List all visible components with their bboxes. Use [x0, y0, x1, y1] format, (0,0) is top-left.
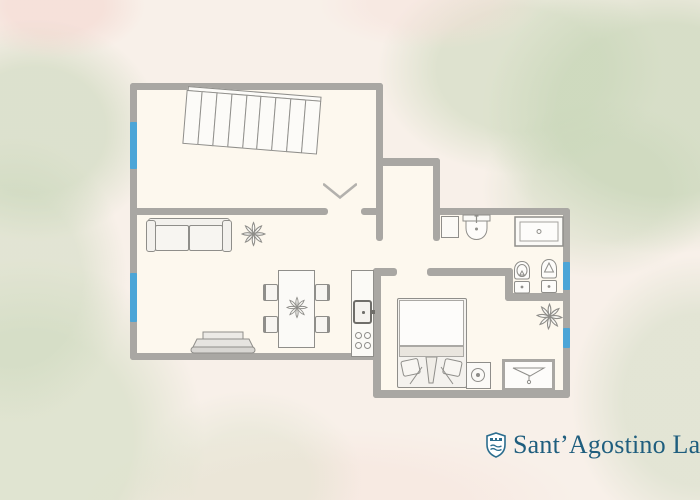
kitchen-sink [353, 300, 372, 324]
bed-pillows [398, 357, 465, 386]
bed-duvet [399, 300, 464, 346]
washing-machine [466, 362, 491, 389]
sofa-armrest-right [222, 220, 232, 252]
sink-drain [362, 311, 365, 314]
wall-corridor-right [433, 158, 440, 241]
wall-bedroom-left [373, 268, 381, 398]
double-bed [397, 298, 467, 388]
sofa-cushion [189, 225, 223, 251]
wall-bottom [373, 390, 570, 398]
dining-chair [315, 284, 330, 301]
basin-icon [510, 366, 547, 386]
washing-machine-door [476, 373, 480, 377]
stove-burner [364, 342, 371, 349]
staircase [183, 86, 321, 155]
shield-lake-icon [485, 432, 507, 458]
wall-top [130, 83, 383, 90]
staircase-steps [183, 90, 321, 155]
plant-icon [241, 221, 266, 247]
washbasin [462, 214, 491, 241]
toilet [512, 260, 532, 295]
wall-bedroom-top-right [427, 268, 513, 276]
brand-watermark: Sant’Agostino Lak [485, 430, 700, 460]
sink-tap-icon [370, 310, 375, 314]
stove-burner [355, 342, 362, 349]
stove-burner [364, 332, 371, 339]
window-living-left [130, 273, 137, 322]
bed-fold [399, 346, 464, 357]
floorplan-canvas: Sant’Agostino Lak [0, 0, 700, 500]
bidet [539, 258, 559, 295]
wall-mid-left [130, 208, 328, 215]
wall-bathroom-top [437, 208, 570, 215]
window-bathroom-right [563, 262, 570, 290]
dining-chair [315, 316, 330, 333]
wall-right [563, 208, 570, 398]
door-opening-chevron-icon [323, 183, 357, 200]
wall-bedroom-top-left [373, 268, 397, 276]
wall-corridor-top [378, 158, 440, 166]
shower-column [441, 216, 459, 238]
dining-chair [263, 284, 278, 301]
stove-burner [355, 332, 362, 339]
window-upper-left [130, 122, 137, 169]
dining-chair [263, 316, 278, 333]
sofa-cushion [155, 225, 189, 251]
table-plant-icon [286, 296, 308, 319]
tv-stand [189, 331, 257, 355]
sofa [146, 217, 232, 253]
window-bedroom-right [563, 328, 570, 348]
laundry-basin [502, 359, 555, 391]
brand-name: Sant’Agostino Lak [513, 430, 700, 460]
vanity-sink [514, 216, 564, 247]
bathroom-plant-icon [536, 302, 563, 331]
